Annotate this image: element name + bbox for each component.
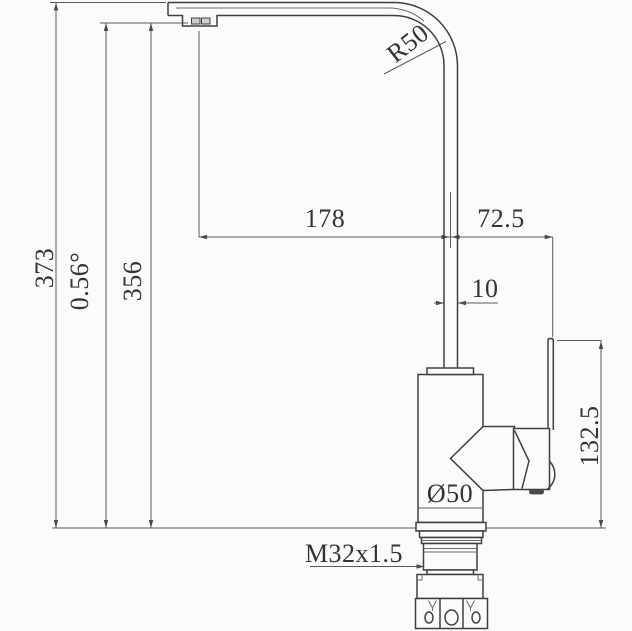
mount-block-upper: [417, 575, 483, 599]
label-outlet-height: 356: [118, 261, 147, 302]
faucet-outline: [168, 3, 555, 629]
label-overall-height: 373: [30, 248, 59, 289]
aerator-detail-left: [192, 18, 201, 24]
label-bend-radius: R50: [381, 18, 434, 68]
threaded-shank: [424, 544, 478, 571]
spout-outer-edge: [168, 3, 458, 369]
gasket-ring: [420, 531, 484, 538]
aerator-detail-right: [202, 18, 211, 24]
cartridge-housing: [514, 429, 550, 490]
label-spout-angle: 0.56°: [65, 252, 94, 310]
valve-bottom-line: [483, 490, 514, 491]
spout-arm: [168, 3, 458, 369]
label-handle-offset: 72.5: [477, 204, 525, 233]
mounting-base: [416, 523, 488, 629]
label-handle-height: 132.5: [575, 406, 604, 467]
label-mounting-thread: M32x1.5: [305, 539, 403, 568]
base-flange: [416, 523, 486, 532]
housing-underside-detail: [530, 490, 544, 495]
technical-drawing-page: 373 0.56° 356 R50 178 72.5 10 132.5 Ø50 …: [0, 0, 632, 631]
spout-inner-edge: [168, 16, 444, 369]
faucet-technical-drawing: 373 0.56° 356 R50 178 72.5 10 132.5 Ø50 …: [0, 0, 632, 631]
label-spout-reach: 178: [305, 204, 346, 233]
label-body-diameter: Ø50: [427, 479, 473, 508]
handle-lever: [548, 339, 553, 431]
label-pipe-width: 10: [472, 274, 499, 303]
body-top-cap: [427, 368, 474, 375]
spout-surface-line: [176, 8, 424, 21]
valve-top-line: [483, 427, 515, 429]
